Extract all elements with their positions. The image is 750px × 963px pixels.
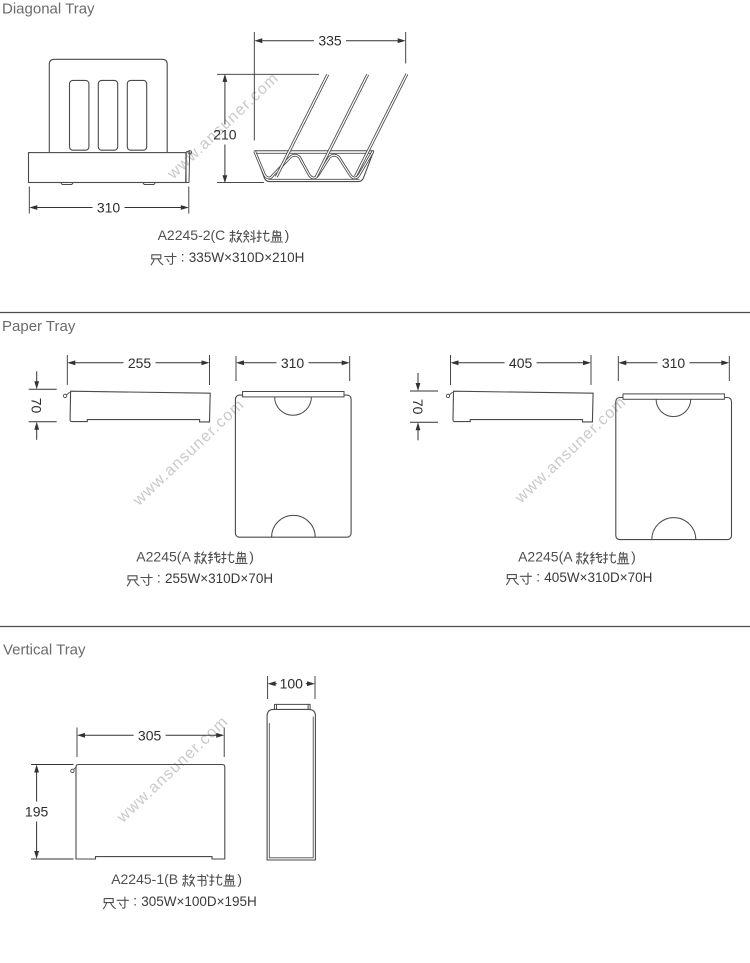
svg-text:A2245-1(B: A2245-1(B (111, 871, 178, 887)
svg-text:335W×310D×210H: 335W×310D×210H (189, 250, 305, 265)
svg-text:405: 405 (509, 355, 533, 371)
svg-text:305W×100D×195H: 305W×100D×195H (141, 894, 257, 909)
svg-text:A2245-2(C: A2245-2(C (158, 227, 226, 243)
svg-text:A2245(A: A2245(A (136, 548, 191, 564)
svg-text:310: 310 (97, 200, 121, 216)
svg-text:): ) (631, 549, 636, 565)
svg-text:100: 100 (280, 676, 304, 692)
svg-text:310: 310 (662, 355, 686, 371)
svg-text::: : (157, 571, 161, 586)
svg-text:): ) (249, 548, 254, 564)
svg-text::: : (133, 893, 137, 908)
svg-text:405W×310D×70H: 405W×310D×70H (544, 570, 652, 585)
svg-text:310: 310 (281, 355, 305, 371)
svg-text:70: 70 (410, 399, 426, 415)
svg-text:A2245(A: A2245(A (518, 549, 573, 565)
svg-text:): ) (237, 871, 242, 887)
svg-text:): ) (285, 227, 290, 243)
svg-text::: : (181, 250, 185, 265)
svg-text::: : (536, 569, 540, 584)
svg-text:70: 70 (29, 398, 45, 414)
svg-text:Diagonal Tray: Diagonal Tray (2, 1, 95, 18)
svg-text:255W×310D×70H: 255W×310D×70H (165, 571, 273, 586)
svg-text:335: 335 (318, 33, 342, 49)
svg-text:Paper Tray: Paper Tray (2, 318, 76, 335)
svg-text:255: 255 (128, 355, 152, 371)
svg-text:195: 195 (25, 804, 49, 820)
svg-text:Vertical Tray: Vertical Tray (3, 642, 86, 659)
svg-text:210: 210 (213, 127, 237, 143)
svg-text:305: 305 (138, 727, 162, 743)
